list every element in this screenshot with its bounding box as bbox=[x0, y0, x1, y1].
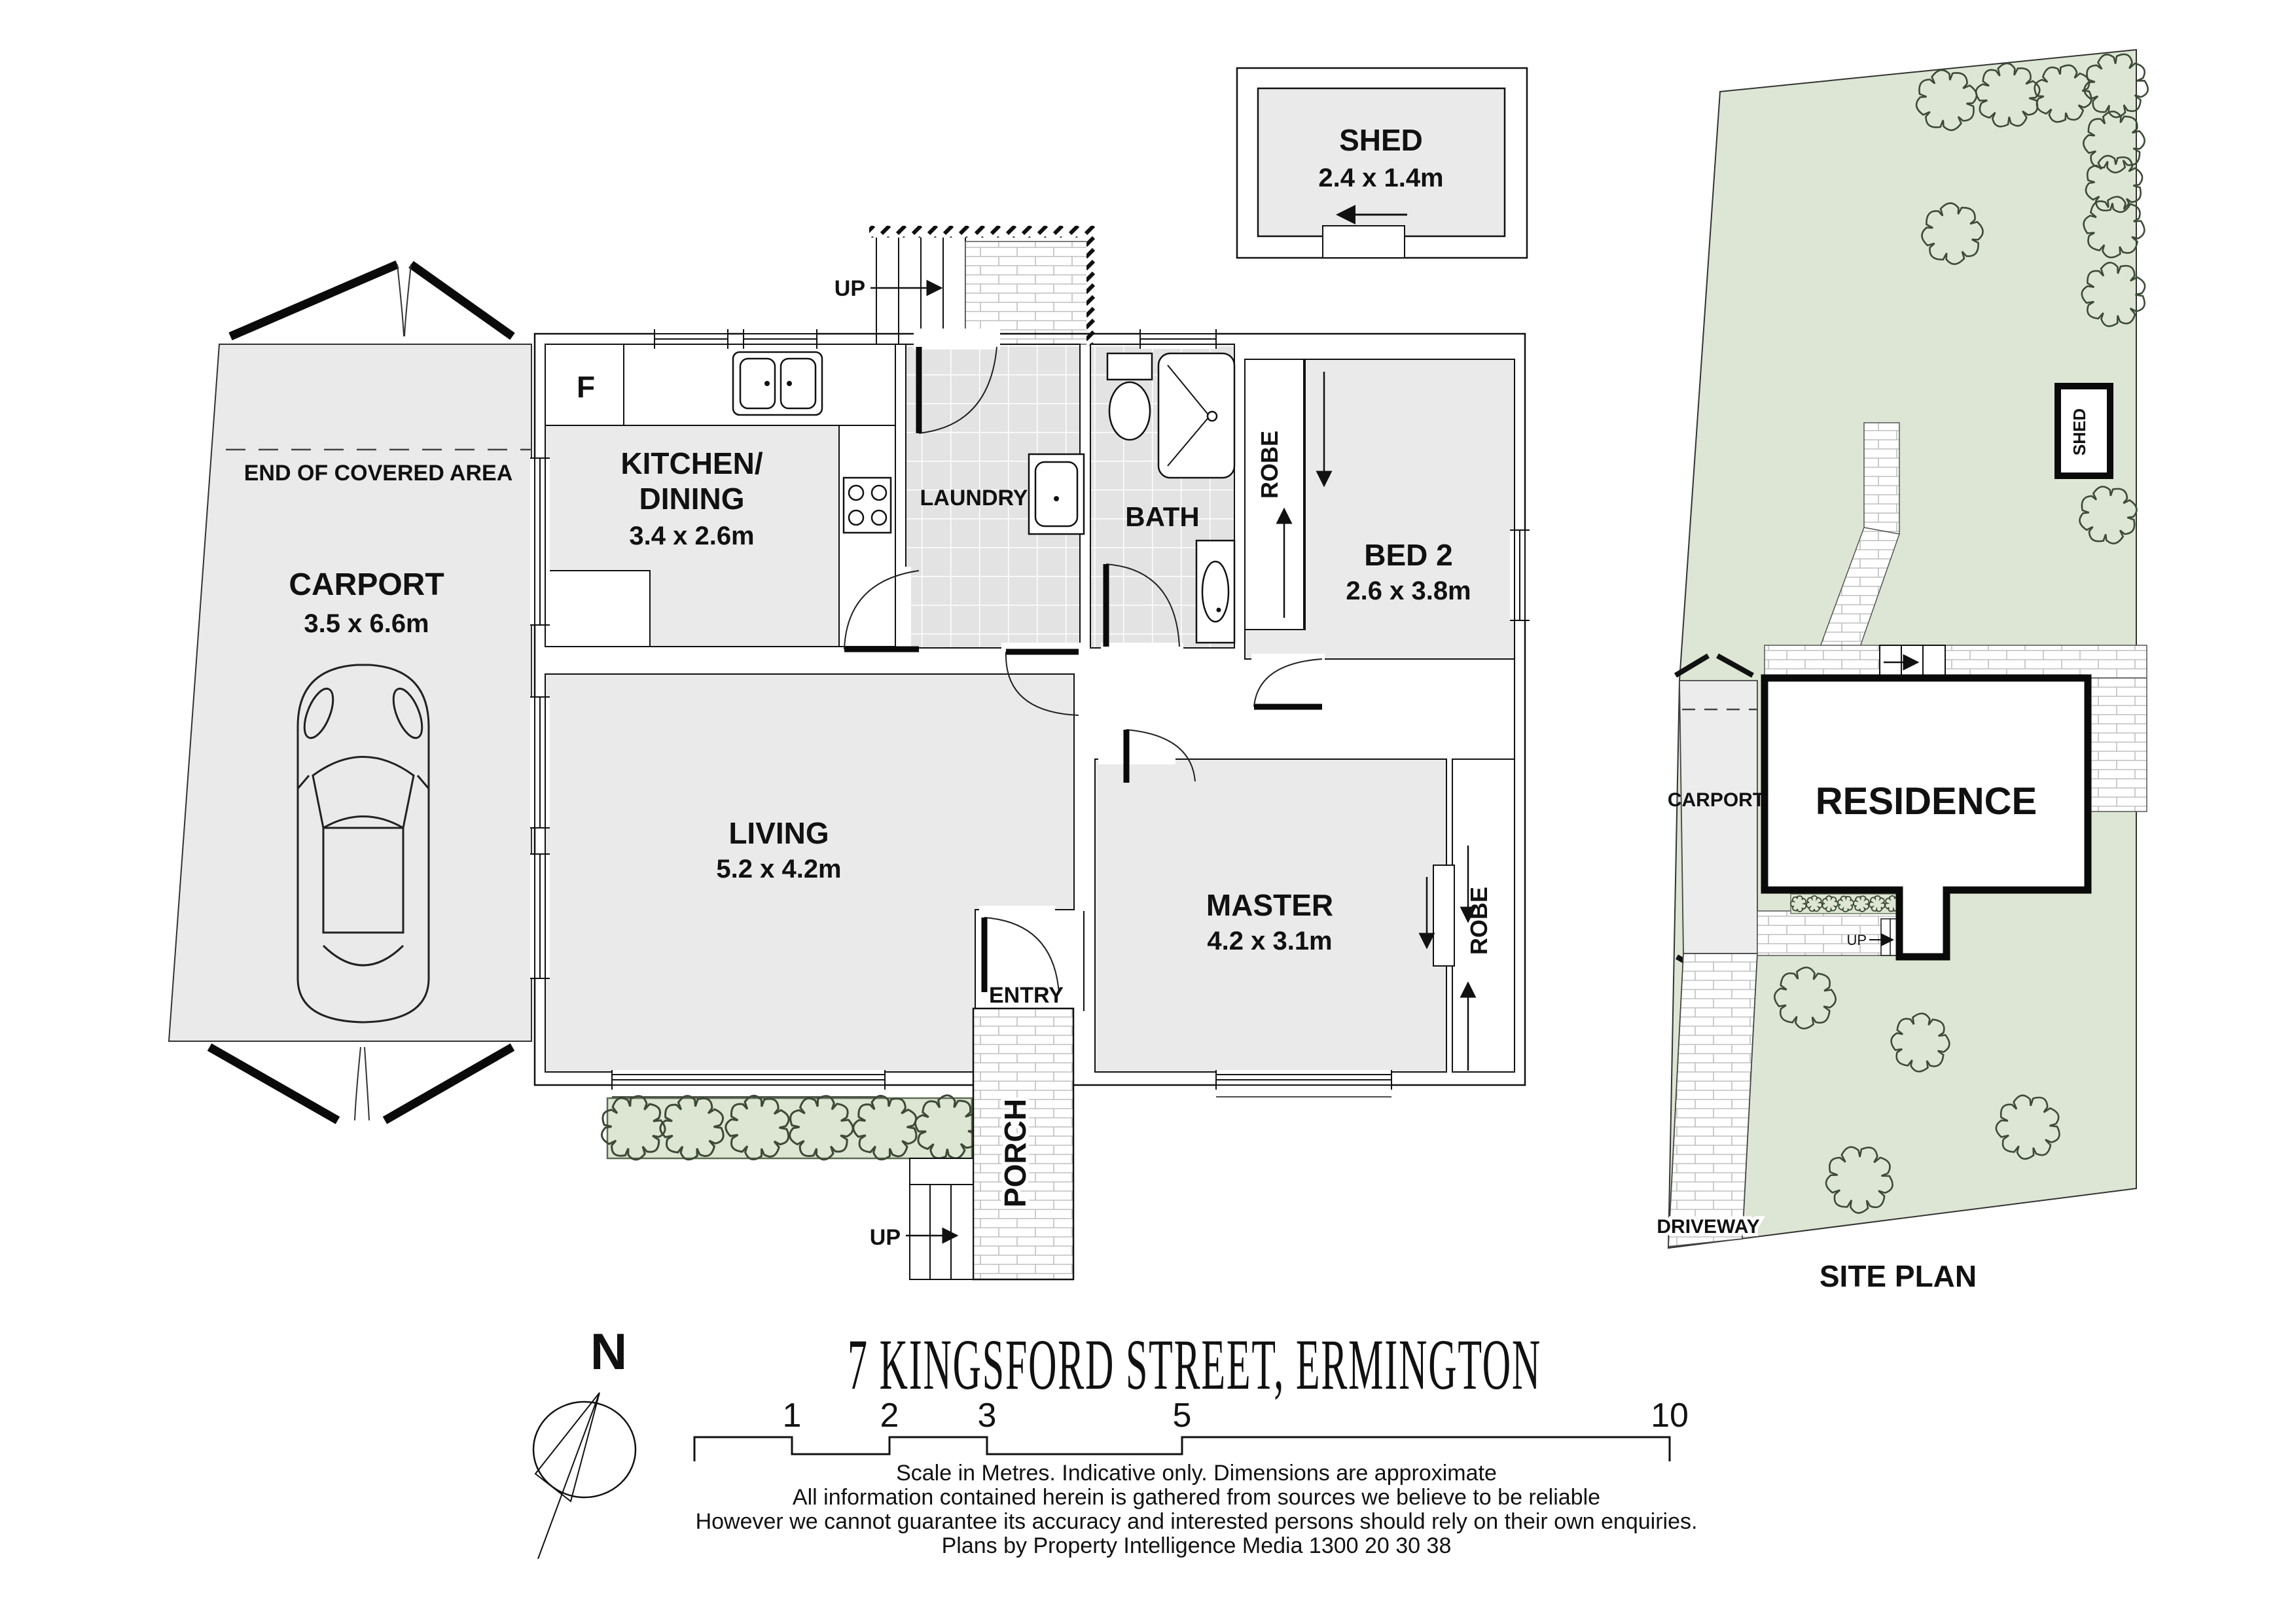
scale-bar-line bbox=[694, 1437, 1670, 1461]
toilet-icon bbox=[1107, 353, 1152, 440]
scale-bar: 123510 bbox=[694, 1397, 1689, 1461]
footer-line-1: Scale in Metres. Indicative only. Dimens… bbox=[896, 1461, 1497, 1486]
bed2-dims: 2.6 x 3.8m bbox=[1346, 577, 1471, 605]
stove-icon bbox=[844, 478, 891, 533]
scale-tick-label: 5 bbox=[1173, 1397, 1192, 1435]
laundry-trough-icon bbox=[1029, 454, 1084, 534]
kitchen-bench-side bbox=[839, 425, 895, 647]
covered-area-label: END OF COVERED AREA bbox=[244, 461, 513, 486]
master-robe-label: ROBE bbox=[1465, 887, 1492, 955]
compass-needle-icon bbox=[535, 1393, 600, 1559]
carport-gable-bottom-icon bbox=[209, 1047, 512, 1120]
kitchen-label-2: DINING bbox=[639, 482, 745, 516]
boundary-tape-side-icon bbox=[1086, 238, 1098, 346]
carport-gable-top-icon bbox=[230, 264, 512, 336]
carport-label: CARPORT bbox=[289, 567, 444, 602]
shed-plan: SHED 2.4 x 1.4m bbox=[1237, 68, 1527, 258]
kitchen-dims: 3.4 x 2.6m bbox=[629, 522, 754, 550]
porch: PORCH bbox=[973, 1008, 1073, 1279]
master-dims: 4.2 x 3.1m bbox=[1207, 927, 1332, 955]
boundary-tape-top-icon bbox=[869, 226, 1098, 238]
master-label: MASTER bbox=[1206, 888, 1333, 922]
plan-title: 7 KINGSFORD STREET, ERMINGTON bbox=[848, 1325, 1541, 1405]
living-dims: 5.2 x 4.2m bbox=[716, 855, 841, 883]
scale-tick-label: 10 bbox=[1651, 1397, 1689, 1435]
footer-disclaimer: Scale in Metres. Indicative only. Dimens… bbox=[696, 1461, 1698, 1558]
kitchen-bench bbox=[545, 344, 895, 425]
site-shed: SHED bbox=[2058, 386, 2110, 476]
carport-dims: 3.5 x 6.6m bbox=[304, 609, 429, 638]
entry-label: ENTRY bbox=[989, 983, 1064, 1008]
floorplan-drawing: CARPORT DRIVEWAY PORCH UP RESIDENCE bbox=[0, 0, 2296, 1623]
porch-steps: UP bbox=[870, 1158, 973, 1279]
shower-icon bbox=[1158, 353, 1234, 478]
room-laundry: LAUNDRY bbox=[906, 344, 1084, 648]
room-bed2: ROBE BED 2 2.6 x 3.8m bbox=[1245, 359, 1515, 659]
site-court bbox=[1757, 911, 1899, 955]
site-patio-side bbox=[2088, 678, 2147, 811]
room-bath: BATH bbox=[1090, 344, 1234, 648]
shed-door bbox=[1323, 226, 1405, 258]
site-plan-title: SITE PLAN bbox=[1820, 1259, 1977, 1293]
bath-label: BATH bbox=[1125, 501, 1200, 532]
carport: END OF COVERED AREA CARPORT 3.5 x 6.6m bbox=[169, 264, 531, 1120]
kitchen-sink-icon bbox=[733, 352, 822, 415]
footer-line-4: Plans by Property Intelligence Media 130… bbox=[942, 1533, 1452, 1558]
bed2-robe-label: ROBE bbox=[1256, 431, 1283, 499]
vanity-icon bbox=[1196, 541, 1234, 643]
site-residence-label: RESIDENCE bbox=[1816, 780, 2037, 823]
master-robe-notch bbox=[1433, 865, 1454, 966]
site-carport-label: CARPORT bbox=[1668, 789, 1765, 811]
living-label: LIVING bbox=[728, 816, 829, 850]
rear-stairs: UP bbox=[834, 234, 965, 344]
scale-tick-label: 2 bbox=[880, 1397, 899, 1435]
site-patio-top bbox=[1765, 645, 2147, 678]
garden-bed bbox=[601, 1096, 978, 1160]
north-label: N bbox=[590, 1323, 627, 1380]
rear-up-label: UP bbox=[834, 276, 865, 301]
site-path-upper bbox=[1864, 423, 1899, 534]
site-rear-stairs bbox=[1880, 645, 1945, 679]
room-master: ROBE MASTER 4.2 x 3.1m bbox=[1095, 759, 1515, 1072]
fridge-label: F bbox=[577, 370, 595, 404]
kitchen-label-1: KITCHEN/ bbox=[620, 446, 762, 480]
shed-label: SHED bbox=[1339, 123, 1423, 157]
site-plan: CARPORT DRIVEWAY PORCH UP RESIDENCE bbox=[1657, 50, 2147, 1293]
floorplan-page: CARPORT DRIVEWAY PORCH UP RESIDENCE bbox=[0, 0, 2296, 1623]
site-driveway-label: DRIVEWAY bbox=[1657, 1216, 1759, 1238]
footer-line-2: All information contained herein is gath… bbox=[793, 1485, 1600, 1510]
footer-line-3: However we cannot guarantee its accuracy… bbox=[696, 1509, 1698, 1534]
porch-up-label: UP bbox=[870, 1225, 901, 1250]
scale-tick-label: 3 bbox=[978, 1397, 997, 1435]
plan-title-group: 7 KINGSFORD STREET, ERMINGTON bbox=[848, 1325, 1541, 1405]
shed-dims: 2.4 x 1.4m bbox=[1318, 164, 1443, 192]
scale-tick-label: 1 bbox=[783, 1397, 802, 1435]
bed2-label: BED 2 bbox=[1364, 538, 1452, 572]
site-shed-label: SHED bbox=[2070, 408, 2089, 455]
kitchen-cupboard bbox=[545, 571, 650, 647]
porch-label: PORCH bbox=[998, 1099, 1032, 1207]
room-kitchen-dining: F KITCHEN/ DINING 3.4 x 2.6m bbox=[545, 344, 895, 647]
car-icon bbox=[298, 665, 429, 1022]
north-arrow: N bbox=[533, 1323, 636, 1559]
site-up-label: UP bbox=[1846, 932, 1867, 948]
laundry-label: LAUNDRY bbox=[920, 486, 1028, 510]
